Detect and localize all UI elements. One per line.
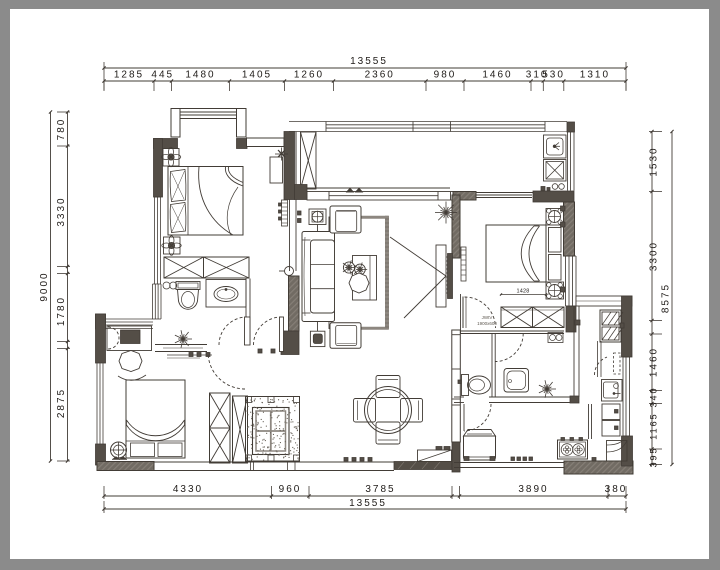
svg-text:3785: 3785 xyxy=(365,484,395,495)
svg-text:3890: 3890 xyxy=(518,484,548,495)
svg-text:780: 780 xyxy=(56,118,67,141)
svg-text:3300: 3300 xyxy=(649,241,660,271)
svg-text:9000: 9000 xyxy=(39,271,50,301)
svg-text:1310: 1310 xyxy=(580,70,610,81)
svg-text:1460: 1460 xyxy=(649,347,660,377)
svg-text:JWtV: JWtV xyxy=(482,315,493,320)
svg-text:980: 980 xyxy=(434,70,457,81)
svg-text:2360: 2360 xyxy=(365,70,395,81)
svg-text:1405: 1405 xyxy=(242,70,272,81)
svg-text:3330: 3330 xyxy=(56,196,67,226)
svg-text:395: 395 xyxy=(649,446,659,467)
svg-text:13555: 13555 xyxy=(350,56,388,67)
svg-text:1165: 1165 xyxy=(649,412,659,439)
svg-text:445: 445 xyxy=(151,70,174,81)
svg-text:1480: 1480 xyxy=(185,70,215,81)
svg-text:530: 530 xyxy=(542,70,565,81)
svg-text:1285: 1285 xyxy=(114,70,144,81)
svg-text:8575: 8575 xyxy=(661,283,672,313)
svg-text:1460: 1460 xyxy=(482,70,512,81)
svg-text:1260: 1260 xyxy=(294,70,324,81)
svg-text:4330: 4330 xyxy=(173,484,203,495)
svg-text:380: 380 xyxy=(605,484,628,495)
svg-text:1428: 1428 xyxy=(516,289,529,295)
svg-text:13555: 13555 xyxy=(349,498,387,509)
svg-text:1530: 1530 xyxy=(649,146,660,176)
svg-text:960: 960 xyxy=(279,484,302,495)
svg-text:1780: 1780 xyxy=(56,296,67,326)
svg-text:1900x600: 1900x600 xyxy=(477,321,497,326)
svg-text:2875: 2875 xyxy=(56,388,67,418)
svg-text:340: 340 xyxy=(649,386,659,407)
